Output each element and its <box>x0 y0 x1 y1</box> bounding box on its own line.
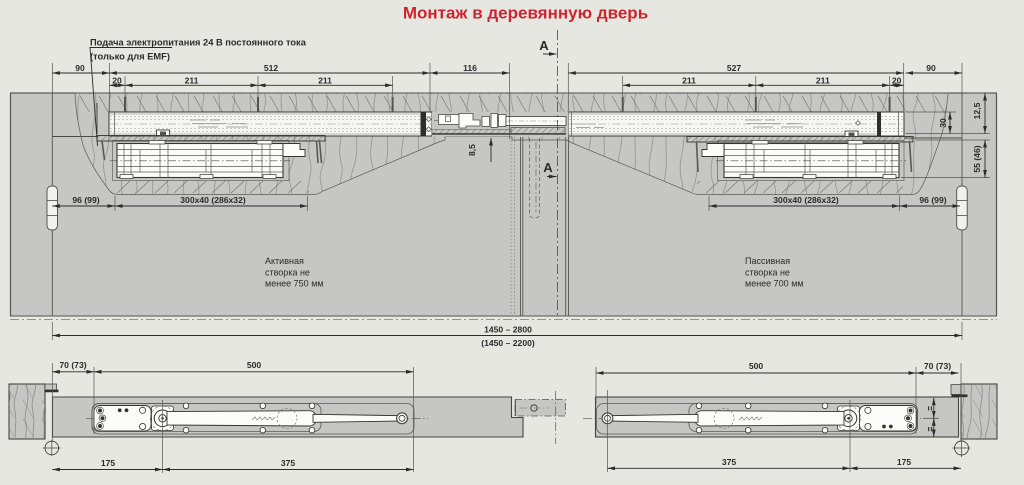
svg-text:375: 375 <box>281 458 296 468</box>
svg-text:12,5: 12,5 <box>972 102 982 119</box>
svg-text:500: 500 <box>247 360 262 370</box>
svg-text:70 (73): 70 (73) <box>924 361 951 371</box>
svg-text:211: 211 <box>816 76 830 86</box>
svg-text:96 (99): 96 (99) <box>72 195 99 205</box>
svg-text:90: 90 <box>926 63 936 73</box>
svg-text:Подача электропитания 24 В пос: Подача электропитания 24 В постоянного т… <box>90 38 307 48</box>
svg-text:116: 116 <box>463 63 477 73</box>
svg-text:30: 30 <box>938 118 948 128</box>
svg-text:375: 375 <box>722 457 737 467</box>
svg-text:175: 175 <box>897 457 912 467</box>
svg-text:A: A <box>543 160 553 175</box>
svg-text:55 (46): 55 (46) <box>972 145 982 172</box>
svg-text:1450 – 2800: 1450 – 2800 <box>484 325 532 335</box>
svg-text:527: 527 <box>727 63 742 73</box>
svg-text:70 (73): 70 (73) <box>59 360 86 370</box>
svg-text:Монтаж в деревянную дверь: Монтаж в деревянную дверь <box>403 4 648 23</box>
svg-text:175: 175 <box>101 458 116 468</box>
svg-text:90: 90 <box>75 63 85 73</box>
svg-text:500: 500 <box>749 361 764 371</box>
svg-text:211: 211 <box>682 76 696 86</box>
svg-text:(только для EMF): (только для EMF) <box>90 52 170 62</box>
svg-text:211: 211 <box>318 76 332 86</box>
svg-text:20: 20 <box>112 76 122 86</box>
svg-text:512: 512 <box>264 63 279 73</box>
svg-text:20: 20 <box>892 76 902 86</box>
svg-text:96 (99): 96 (99) <box>919 195 946 205</box>
svg-text:300х40 (286х32): 300х40 (286х32) <box>180 195 246 205</box>
svg-text:(1450 – 2200): (1450 – 2200) <box>481 338 535 348</box>
svg-text:8,5: 8,5 <box>467 144 477 156</box>
svg-text:A: A <box>539 38 549 53</box>
svg-text:211: 211 <box>185 76 199 86</box>
svg-text:300х40 (286х32): 300х40 (286х32) <box>773 195 839 205</box>
